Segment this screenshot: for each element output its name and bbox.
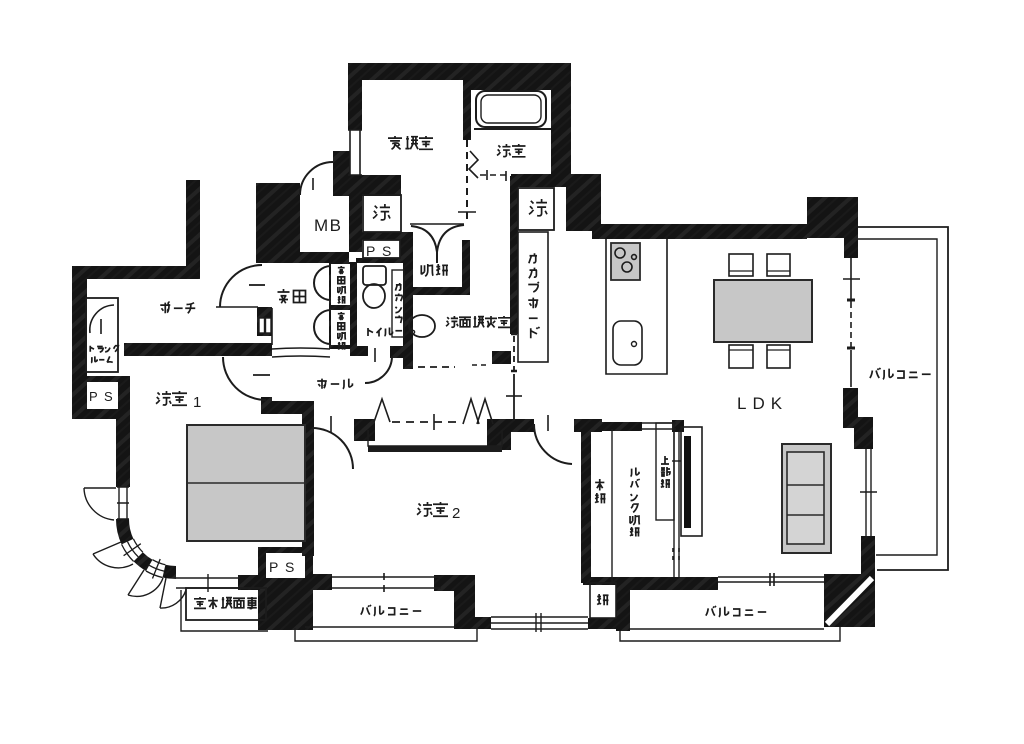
svg-text:P S: P S bbox=[366, 243, 393, 259]
svg-text:LDK: LDK bbox=[737, 394, 788, 413]
svg-text:P S: P S bbox=[269, 559, 296, 575]
svg-text:1: 1 bbox=[193, 394, 203, 411]
svg-text:P S: P S bbox=[89, 389, 114, 404]
svg-text:2: 2 bbox=[452, 505, 462, 522]
svg-text:MB: MB bbox=[314, 216, 343, 235]
